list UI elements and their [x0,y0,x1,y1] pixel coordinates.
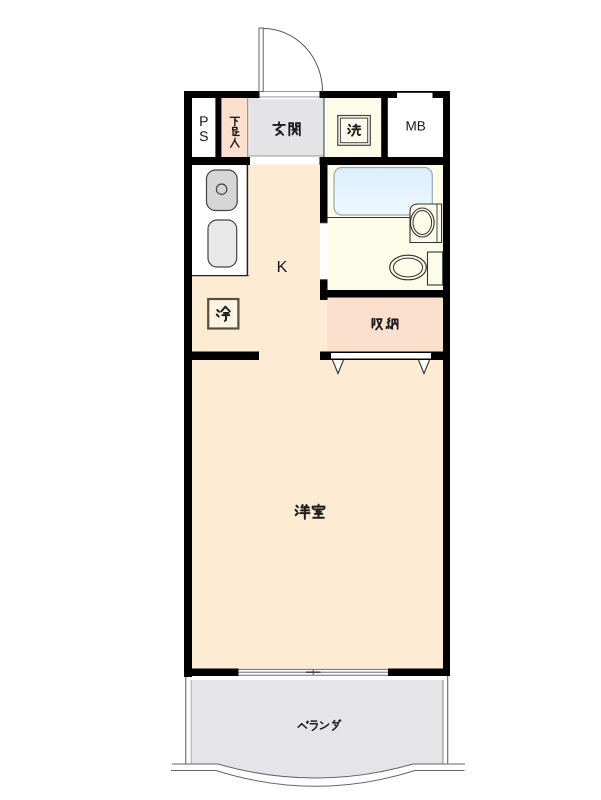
svg-text:K: K [277,259,288,276]
svg-text:MB: MB [405,119,425,134]
svg-text:S: S [199,128,208,144]
svg-text:P: P [199,113,208,129]
